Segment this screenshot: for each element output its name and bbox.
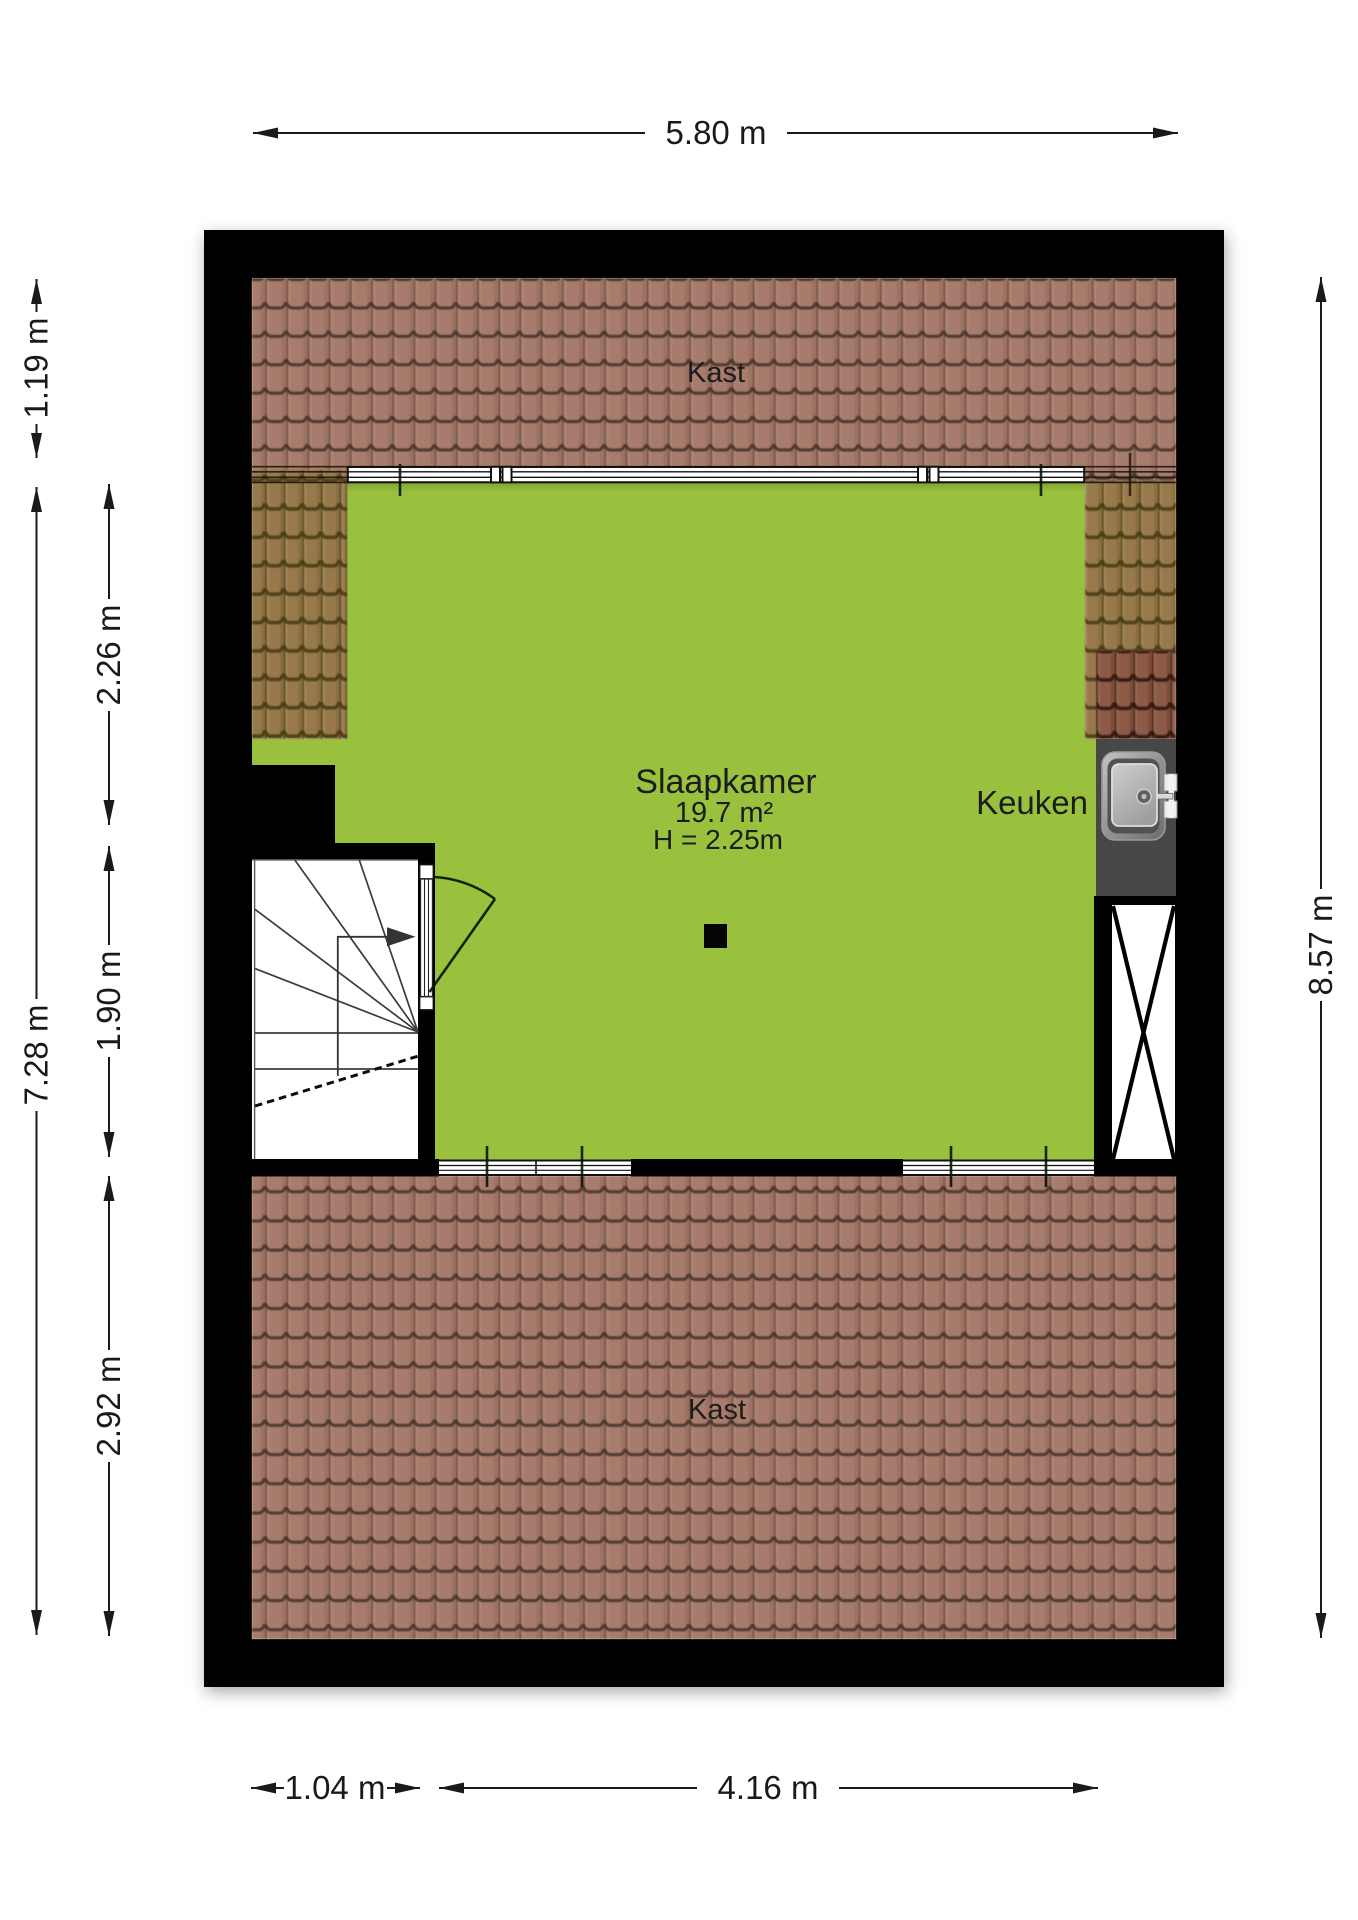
svg-text:8.57 m: 8.57 m — [1302, 895, 1339, 996]
svg-text:Kast: Kast — [687, 357, 745, 389]
svg-text:Slaapkamer: Slaapkamer — [635, 763, 816, 801]
svg-text:Keuken: Keuken — [976, 784, 1088, 821]
svg-text:5.80 m: 5.80 m — [666, 114, 767, 151]
svg-text:7.28 m: 7.28 m — [18, 1005, 55, 1106]
svg-text:1.90 m: 1.90 m — [90, 951, 127, 1052]
svg-text:4.16 m: 4.16 m — [718, 1769, 819, 1806]
svg-text:1.04 m: 1.04 m — [285, 1769, 386, 1806]
svg-text:Kast: Kast — [688, 1394, 746, 1426]
svg-text:2.92 m: 2.92 m — [90, 1356, 127, 1457]
svg-text:H = 2.25m: H = 2.25m — [653, 824, 783, 855]
svg-text:2.26 m: 2.26 m — [90, 605, 127, 706]
svg-text:1.19 m: 1.19 m — [18, 318, 55, 419]
